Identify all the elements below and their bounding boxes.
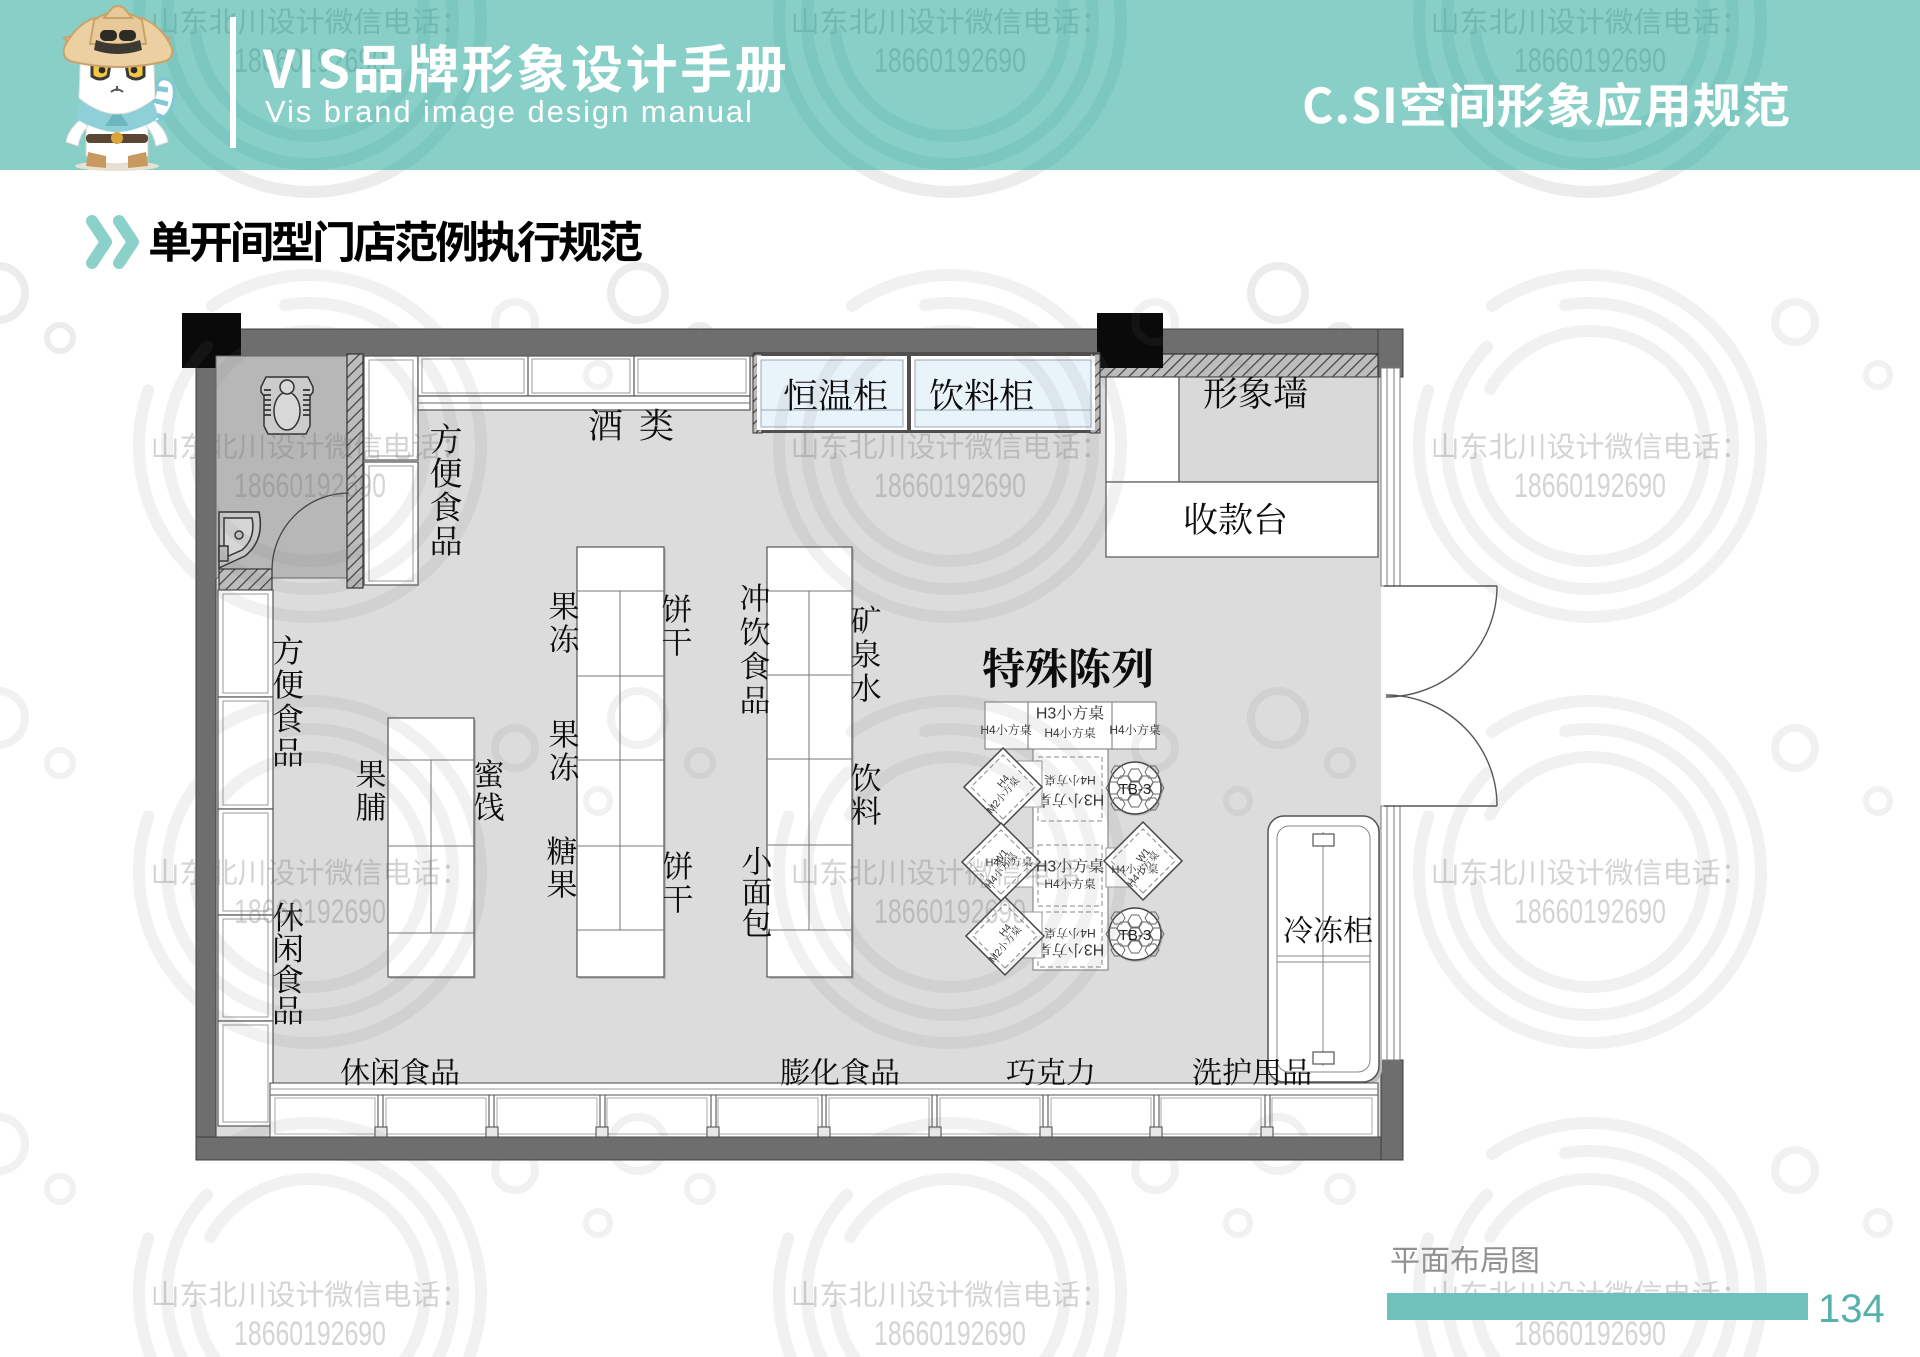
svg-text:3: 3 [1084, 940, 1093, 957]
svg-text:18660192690: 18660192690 [234, 467, 386, 505]
svg-text:H: H [1087, 926, 1096, 940]
svg-text:18660192690: 18660192690 [1514, 42, 1666, 80]
svg-text:3: 3 [1084, 790, 1093, 807]
svg-text:18660192690: 18660192690 [234, 893, 386, 931]
svg-text:H: H [1109, 723, 1118, 737]
svg-text:18660192690: 18660192690 [874, 467, 1026, 505]
svg-text:4: 4 [1118, 723, 1125, 737]
svg-text:TB-3: TB-3 [1119, 781, 1152, 798]
svg-text:18660192690: 18660192690 [1514, 467, 1666, 505]
svg-text:18660192690: 18660192690 [874, 893, 1026, 931]
svg-text:18660192690: 18660192690 [234, 1315, 386, 1353]
svg-text:18660192690: 18660192690 [874, 42, 1026, 80]
svg-text:3: 3 [1047, 706, 1056, 723]
svg-text:18660192690: 18660192690 [1514, 1315, 1666, 1353]
svg-text:18660192690: 18660192690 [874, 1315, 1026, 1353]
svg-text:TB-3: TB-3 [1119, 927, 1152, 944]
svg-text:18660192690: 18660192690 [1514, 893, 1666, 931]
svg-text:134: 134 [1818, 1287, 1885, 1331]
svg-text:Vis brand image design manual: Vis brand image design manual [265, 94, 754, 129]
